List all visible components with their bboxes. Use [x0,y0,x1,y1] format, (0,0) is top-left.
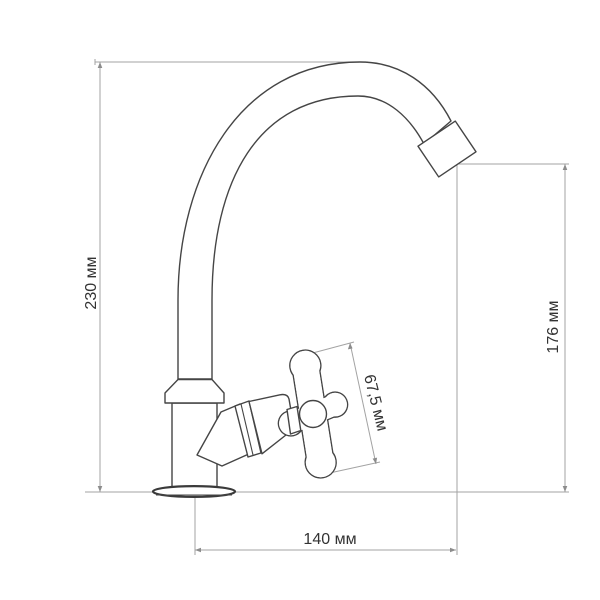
dimension-handle-diameter: 67,5 мм [348,343,391,464]
dimension-annotations: 230 мм 176 мм 140 мм 67,5 мм [83,59,569,555]
arrow-down-icon [98,486,103,492]
arrow-diagonal-up-icon [348,343,353,349]
handle-diameter-label: 67,5 мм [360,373,390,433]
handle-center-cap [300,401,327,428]
dimension-spout-height: 176 мм [545,164,567,492]
total-height-label: 230 мм [83,256,100,309]
faucet-technical-drawing: 230 мм 176 мм 140 мм 67,5 мм [0,0,600,600]
dimension-total-height: 230 мм [83,62,102,492]
handle-extension-line-top [309,342,354,354]
arrow-down-icon [563,486,568,492]
arrow-up-icon [563,164,568,170]
faucet-outline [153,62,476,497]
arrow-left-icon [195,548,201,553]
spout-height-label: 176 мм [545,300,562,353]
arrow-up-icon [98,62,103,68]
base-flange [153,486,235,497]
drawing-canvas: 230 мм 176 мм 140 мм 67,5 мм [0,0,600,600]
spout-pipe [178,62,451,379]
spout-reach-label: 140 мм [303,531,356,548]
dimension-spout-reach: 140 мм [195,531,456,552]
arrow-right-icon [450,548,456,553]
collar [165,380,224,404]
